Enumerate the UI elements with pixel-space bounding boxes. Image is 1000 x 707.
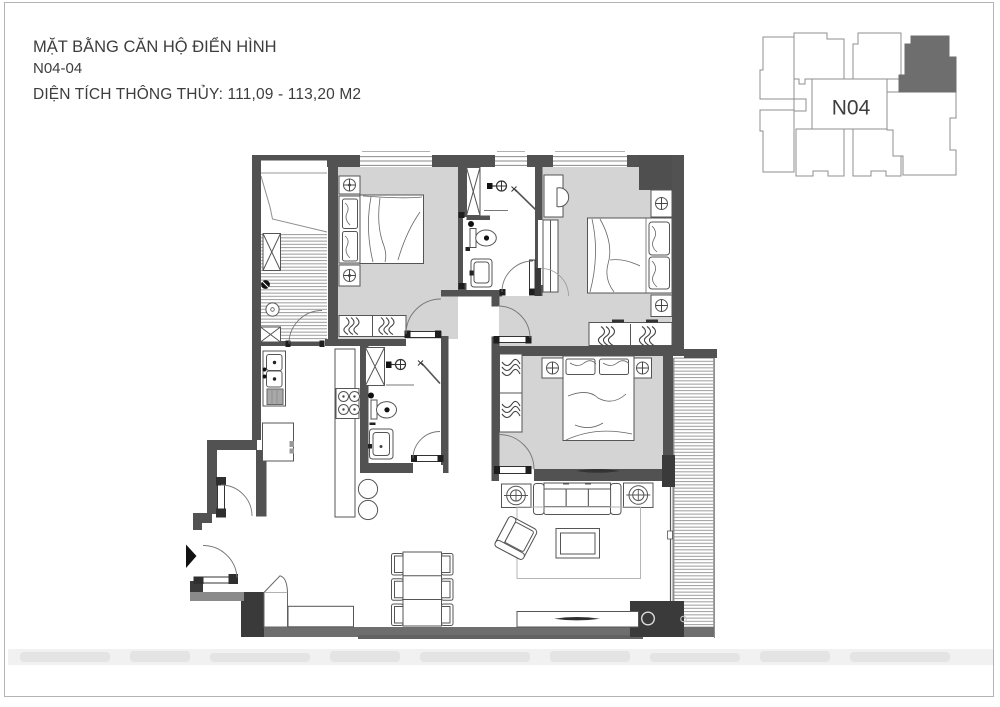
svg-text:N04: N04 — [832, 97, 871, 120]
svg-text:DIỆN TÍCH THÔNG THỦY: 111,09 -: DIỆN TÍCH THÔNG THỦY: 111,09 - 113,20 M2 — [33, 85, 361, 103]
svg-text:MẶT BẰNG CĂN HỘ ĐIỂN HÌNH: MẶT BẰNG CĂN HỘ ĐIỂN HÌNH — [33, 37, 277, 56]
svg-text:N04-04: N04-04 — [33, 60, 82, 77]
